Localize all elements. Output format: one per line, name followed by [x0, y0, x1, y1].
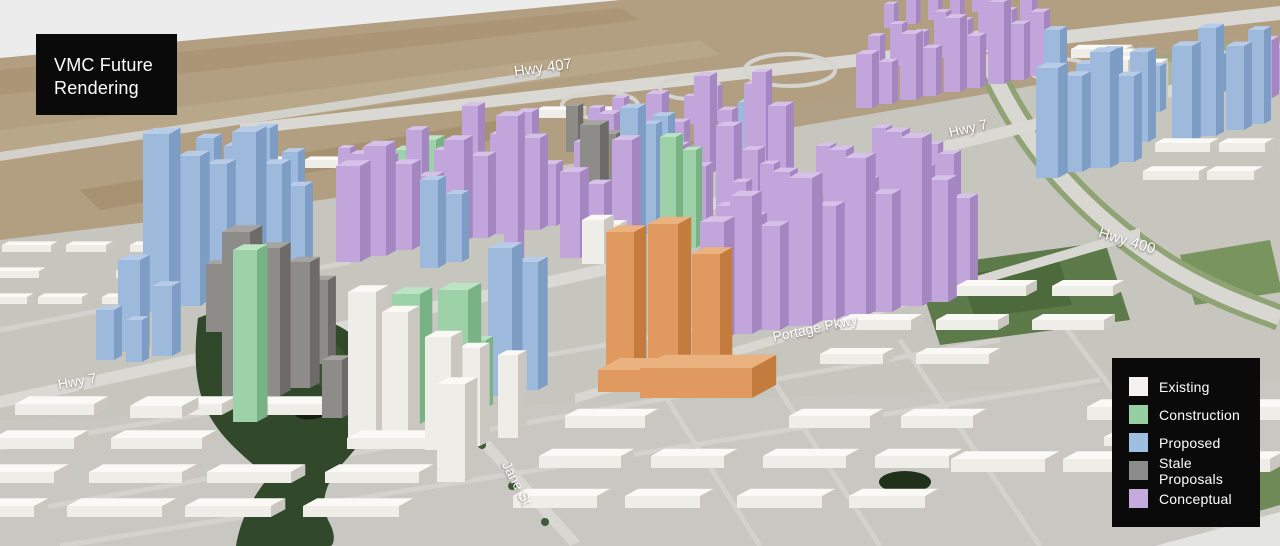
building-existing [67, 498, 176, 517]
building-proposed [1172, 41, 1201, 142]
building-orange [692, 247, 732, 370]
building-stale [322, 355, 351, 418]
building-existing [875, 449, 962, 468]
building-proposed [1036, 63, 1068, 178]
building-existing [1063, 451, 1162, 472]
building-conceptual [950, 0, 964, 16]
building-existing [89, 464, 196, 483]
building-existing [325, 464, 433, 483]
building-proposed [126, 316, 149, 362]
building-existing [789, 409, 883, 428]
building-existing [437, 377, 477, 482]
building-existing [111, 430, 216, 449]
building-proposed [152, 281, 181, 356]
building-conceptual [872, 189, 901, 312]
building-existing [820, 348, 894, 364]
building-existing [1087, 399, 1194, 420]
building-conceptual [336, 160, 371, 262]
building-existing [66, 241, 113, 252]
building-existing [38, 293, 89, 304]
building-existing [565, 409, 658, 428]
building-existing [1175, 451, 1280, 472]
building-existing [185, 498, 285, 517]
building-existing [1032, 314, 1115, 330]
building-proposed [1090, 47, 1119, 168]
building-orange [640, 355, 776, 398]
building-existing [1199, 399, 1280, 420]
building-conceptual [1010, 21, 1030, 80]
building-existing [1155, 138, 1219, 152]
building-existing [303, 498, 413, 517]
building-conceptual [392, 159, 421, 250]
building-existing [916, 348, 1000, 364]
building-existing [1219, 138, 1274, 152]
building-existing [737, 489, 835, 508]
building-existing [763, 449, 859, 468]
building-conceptual [922, 45, 942, 96]
building-conceptual [522, 134, 548, 230]
building-existing [1120, 386, 1180, 400]
building-orange [606, 225, 646, 378]
building-proposed [446, 190, 469, 262]
building-existing [1174, 432, 1245, 446]
building-existing [951, 451, 1059, 472]
building-existing [498, 350, 527, 438]
building-existing [0, 267, 46, 278]
building-conceptual [730, 191, 762, 334]
building-conceptual [844, 153, 876, 316]
building-existing [651, 449, 737, 468]
building-conceptual [856, 50, 879, 108]
building-conceptual [470, 152, 496, 238]
building-conceptual [878, 59, 898, 104]
building-existing [0, 293, 34, 304]
building-existing [513, 489, 610, 508]
building-proposed [1116, 72, 1142, 162]
building-conceptual [928, 175, 957, 302]
building-existing [539, 449, 634, 468]
building-conceptual [944, 14, 967, 92]
building-existing [0, 430, 88, 449]
building-existing [2, 241, 58, 252]
building-existing [1104, 432, 1165, 446]
building-proposed [1198, 24, 1224, 136]
building-existing [849, 489, 938, 508]
building-existing [1207, 166, 1263, 180]
building-proposed [420, 176, 446, 268]
building-conceptual [760, 221, 789, 330]
building-existing [625, 489, 713, 508]
building-existing [1143, 166, 1208, 180]
building-existing [840, 314, 922, 330]
building-proposed [178, 151, 210, 306]
building-existing [936, 314, 1009, 330]
building-proposed [96, 306, 122, 360]
building-conceptual [788, 172, 823, 326]
building-conceptual [966, 33, 986, 88]
building-existing [1190, 386, 1260, 400]
building-construction [233, 244, 268, 422]
building-conceptual [900, 30, 923, 100]
building-existing [15, 396, 108, 415]
vmc-rendering-stage: VMC Future Rendering Hwy 407 Hwy 7 Hwy 4… [0, 0, 1280, 546]
building-existing [0, 464, 68, 483]
building-conceptual [906, 0, 920, 24]
building-orange [648, 217, 691, 374]
building-conceptual [988, 0, 1011, 84]
building-existing [956, 280, 1037, 296]
building-existing [207, 464, 305, 483]
aerial-3d-map [0, 0, 1280, 546]
building-conceptual [900, 133, 932, 306]
building-conceptual [504, 113, 524, 262]
building-proposed [1226, 42, 1252, 130]
building-stale [288, 257, 320, 388]
building-existing [901, 409, 986, 428]
building-existing [382, 306, 419, 445]
building-existing [1052, 280, 1124, 296]
